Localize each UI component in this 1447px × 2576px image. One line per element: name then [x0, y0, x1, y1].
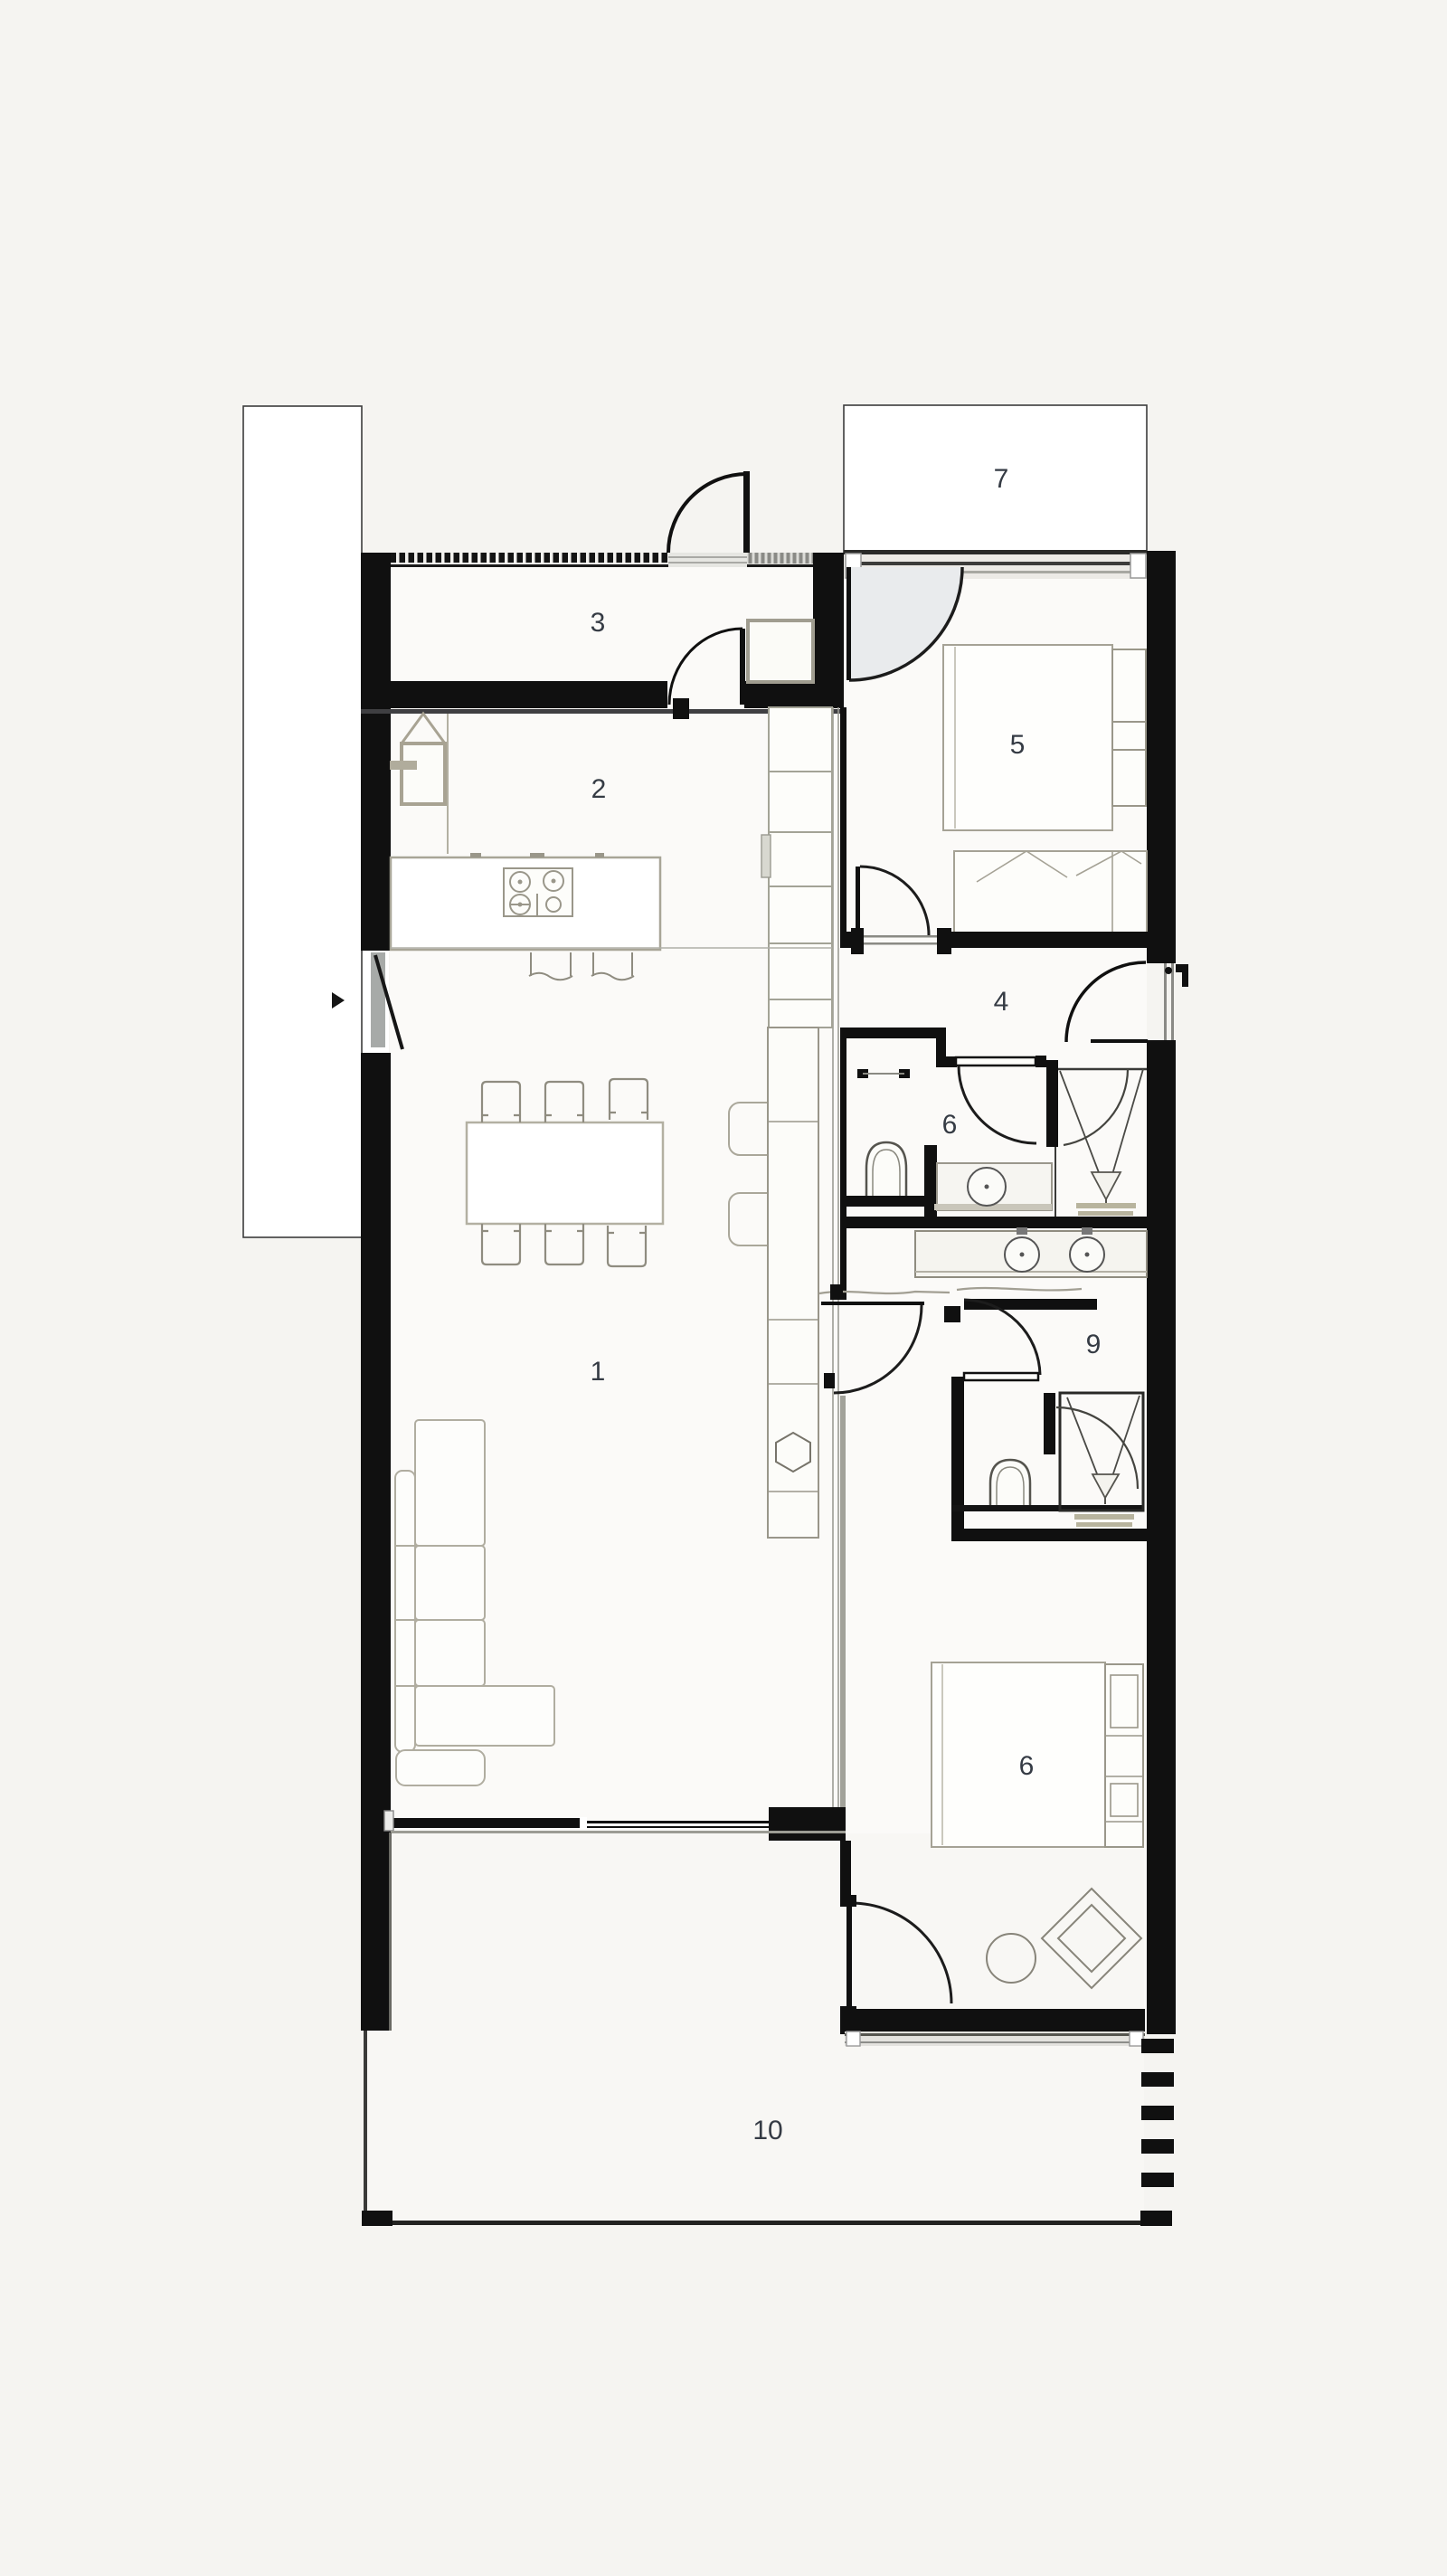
svg-text:6: 6 [942, 1110, 958, 1140]
svg-text:9: 9 [1086, 1330, 1102, 1359]
svg-text:7: 7 [994, 464, 1009, 494]
svg-text:1: 1 [591, 1357, 606, 1387]
svg-text:5: 5 [1010, 730, 1026, 760]
svg-text:3: 3 [591, 608, 606, 638]
svg-text:10: 10 [752, 2116, 782, 2145]
svg-text:2: 2 [591, 774, 607, 804]
svg-text:4: 4 [994, 987, 1009, 1017]
svg-text:6: 6 [1019, 1751, 1035, 1781]
